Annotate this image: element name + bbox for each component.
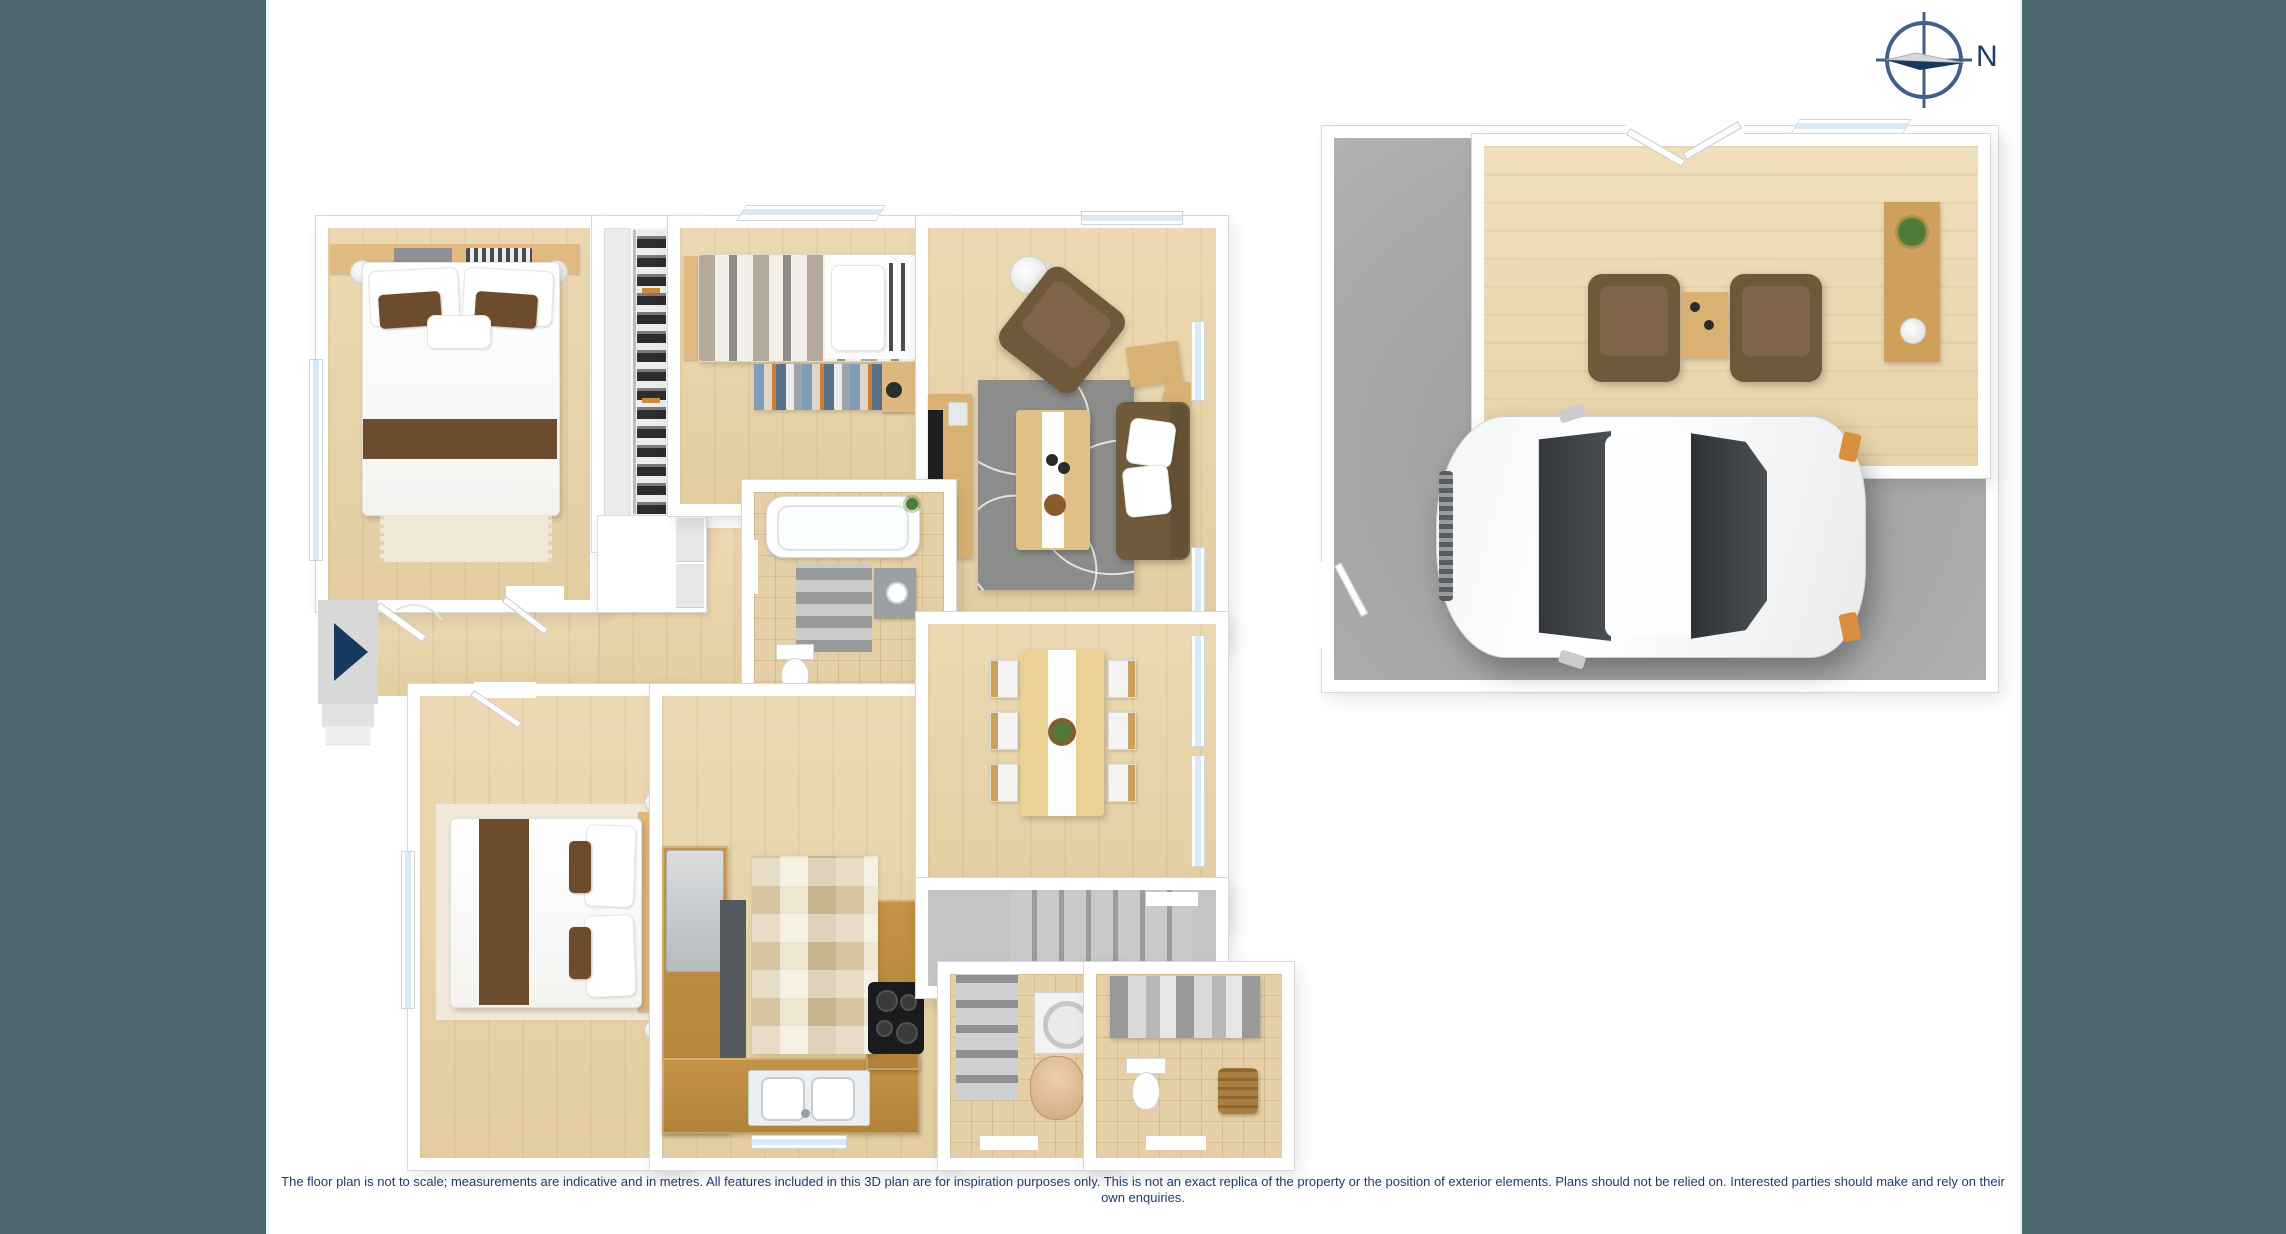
living-top-window <box>1082 212 1182 224</box>
dining-chair <box>1108 660 1136 698</box>
left-side-panel <box>0 0 269 1234</box>
bath-mat <box>796 564 872 652</box>
room-bedroom-2 <box>668 216 950 516</box>
wc-toilet-bowl <box>1132 1072 1160 1110</box>
room-kitchen <box>650 684 956 1170</box>
garage-side-door-opening <box>1318 562 1334 648</box>
wc-door-opening <box>1146 1136 1206 1150</box>
bedroom2-skylight <box>738 206 885 220</box>
dining-table <box>1020 650 1104 816</box>
cupboard-drawer <box>676 564 704 608</box>
master-window <box>310 360 322 560</box>
dining-plant <box>1053 723 1071 741</box>
dining-chair <box>1108 712 1136 750</box>
master-door-opening <box>506 586 564 604</box>
car-roof <box>1605 435 1697 637</box>
laundry-door-opening <box>980 1136 1038 1150</box>
bowl <box>1046 454 1058 466</box>
hanging-clothes <box>637 230 666 514</box>
fridge <box>666 850 724 972</box>
bed-runner <box>363 419 557 459</box>
table-runner <box>1042 412 1064 548</box>
cupboard-drawer <box>676 518 704 562</box>
rumpus-armchair-1 <box>1588 274 1680 382</box>
rumpus-side-table <box>1682 292 1728 358</box>
clothes-accent <box>642 288 660 293</box>
wicker-basket <box>1218 1068 1258 1114</box>
small-pillow <box>427 315 491 349</box>
sofa-pillow <box>1125 417 1177 469</box>
car-grille <box>1439 471 1453 601</box>
bed3-pillow <box>584 824 637 908</box>
dining-chair <box>1108 764 1136 802</box>
sofa <box>1116 402 1190 560</box>
bed2-stripe-accent <box>889 263 909 351</box>
entry-arrow-icon <box>334 623 368 681</box>
stair-landing-door-opening <box>1146 892 1198 906</box>
console <box>948 402 968 426</box>
dining-chair <box>990 712 1018 750</box>
vanity <box>874 568 916 618</box>
staircase-down <box>956 974 1018 1100</box>
bathroom-door-opening <box>742 540 758 594</box>
kitchen-rug <box>752 856 878 1054</box>
room-living <box>916 216 1228 646</box>
rumpus-lamp <box>1900 318 1926 344</box>
coffee-table <box>1016 410 1090 550</box>
double-bed <box>362 262 560 516</box>
bathtub-basin <box>777 505 909 551</box>
bowl <box>1058 462 1070 474</box>
table-item <box>1704 320 1714 330</box>
car <box>1436 416 1866 658</box>
single-bed <box>698 254 916 362</box>
dining-window-1 <box>1192 636 1204 746</box>
room-bedroom-3 <box>408 684 686 1170</box>
faucet <box>801 1109 810 1118</box>
kitchen-sink <box>748 1070 870 1126</box>
dining-window-2 <box>1192 756 1204 866</box>
bed3-window <box>402 852 414 1008</box>
compass-north-label: N <box>1976 40 1998 74</box>
foot-blanket <box>380 516 552 562</box>
rumpus-window <box>1792 120 1910 133</box>
car-rear-window <box>1691 429 1767 643</box>
rumpus-plant <box>1898 218 1926 246</box>
disclaimer-text: The floor plan is not to scale; measurem… <box>269 1174 2017 1206</box>
rumpus-armchair-2 <box>1730 274 1822 382</box>
dining-chair <box>990 660 1018 698</box>
table-decor <box>1044 494 1066 516</box>
bath-plant <box>906 498 918 510</box>
hall-cupboard <box>598 516 706 612</box>
towel-roll <box>1030 1056 1084 1120</box>
sofa-pillow <box>1122 464 1173 519</box>
kitchen-window <box>752 1136 846 1148</box>
table-item <box>1690 302 1700 312</box>
bed2-pillow <box>831 265 885 351</box>
living-window-1 <box>1192 322 1204 400</box>
vanity-sink <box>886 582 908 604</box>
bed3-runner <box>479 819 529 1005</box>
wardrobe-rail <box>633 230 636 514</box>
living-window-2 <box>1192 548 1204 618</box>
clothes-accent <box>642 398 660 403</box>
room-master-bedroom <box>316 216 602 612</box>
compass-icon <box>1874 10 1974 110</box>
wardrobe-shelves <box>604 228 630 516</box>
porch-step <box>326 726 370 744</box>
car-windshield <box>1523 431 1611 641</box>
bed3-accent-pillow <box>569 927 591 979</box>
porch-step <box>322 704 374 726</box>
wc-striped-wall <box>1110 976 1260 1038</box>
bathtub <box>766 496 920 558</box>
dining-chair <box>990 764 1018 802</box>
bed2-headboard <box>684 256 698 360</box>
bed3-double-bed <box>450 818 642 1008</box>
bed3-pillow <box>584 914 637 998</box>
rumpus-sideboard <box>1884 202 1940 362</box>
right-side-panel <box>2020 0 2286 1234</box>
desk-chair <box>886 382 902 398</box>
bed3-accent-pillow <box>569 841 591 893</box>
oven <box>720 900 746 1058</box>
